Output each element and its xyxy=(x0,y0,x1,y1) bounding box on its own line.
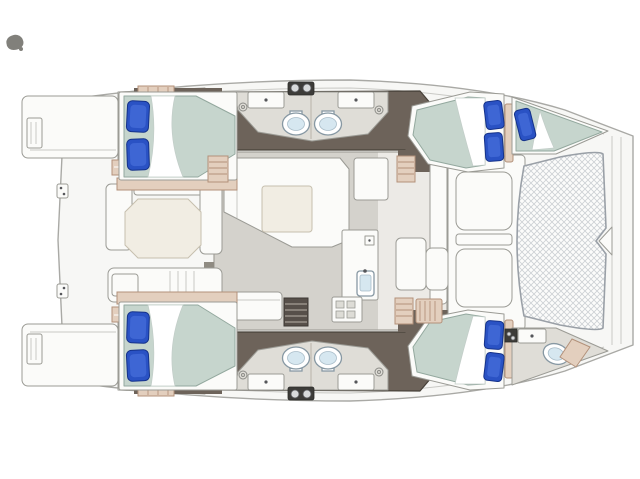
galley-fridge xyxy=(354,158,388,200)
pillow xyxy=(126,139,149,171)
pillow xyxy=(484,132,504,161)
galley-island xyxy=(396,238,426,290)
pillow xyxy=(483,100,504,130)
floor-plan-page xyxy=(0,0,640,479)
faucet-right xyxy=(354,98,357,101)
bow-cabinet xyxy=(505,329,517,342)
sunpad-top xyxy=(456,172,512,230)
stove-burner xyxy=(336,301,344,308)
stern-cleat-fitting xyxy=(57,184,68,198)
companionway-steps-top-left xyxy=(208,156,228,182)
stove-burner xyxy=(347,301,355,308)
aft-cockpit xyxy=(106,182,222,302)
artifact-smudge xyxy=(6,35,23,51)
trampoline xyxy=(517,153,606,330)
stove-burner xyxy=(336,311,344,318)
stern-cleat-fitting-mirror xyxy=(57,284,68,298)
galley-sink-basin xyxy=(360,275,371,291)
cockpit-table xyxy=(125,199,201,258)
platform-step-box xyxy=(27,118,42,148)
winch-drum xyxy=(303,84,311,92)
aft-cabin-bed-mirror xyxy=(117,292,237,390)
faucet-left xyxy=(264,98,267,101)
winch-drum xyxy=(291,84,299,92)
cockpit-chaise-right xyxy=(200,184,222,254)
companionway-steps-top-right xyxy=(397,156,415,182)
companionway-steps-bottom-right xyxy=(395,298,442,324)
pillow xyxy=(126,100,150,132)
sunpad-gap-bar xyxy=(456,234,512,245)
sunpad-bottom xyxy=(456,249,512,307)
bow-faucet xyxy=(530,334,533,337)
galley-island-seat xyxy=(426,248,448,290)
saloon-table xyxy=(262,186,312,232)
stove-burner xyxy=(347,311,355,318)
catamaran-floor-plan xyxy=(0,0,640,479)
forward-cockpit xyxy=(448,155,525,330)
galley-faucet xyxy=(363,269,367,273)
companionway-steps-bottom-left xyxy=(284,298,308,326)
